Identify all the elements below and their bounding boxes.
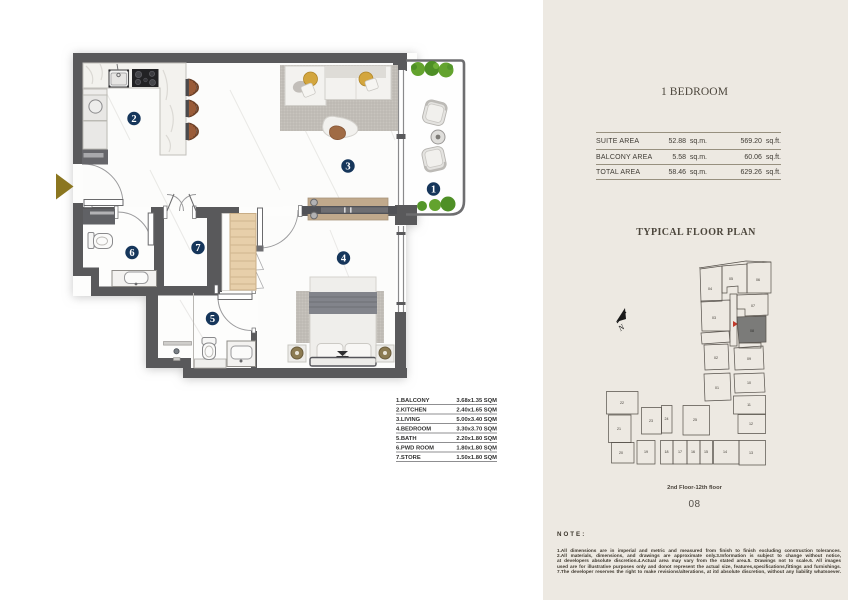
- svg-text:2.KITCHEN: 2.KITCHEN: [396, 408, 427, 414]
- svg-text:5.00x3.40 SQM: 5.00x3.40 SQM: [456, 417, 497, 423]
- svg-text:4: 4: [341, 254, 347, 265]
- svg-text:5.BATH: 5.BATH: [396, 436, 417, 442]
- svg-text:7: 7: [195, 243, 200, 254]
- svg-text:7.STORE: 7.STORE: [396, 455, 421, 461]
- svg-text:1.80x1.80 SQM: 1.80x1.80 SQM: [456, 446, 497, 452]
- svg-text:4.BEDROOM: 4.BEDROOM: [396, 427, 431, 433]
- svg-text:3: 3: [345, 162, 350, 173]
- svg-text:3.68x1.35 SQM: 3.68x1.35 SQM: [456, 398, 497, 404]
- svg-text:3.LIVING: 3.LIVING: [396, 417, 421, 423]
- svg-text:1: 1: [431, 185, 436, 196]
- svg-text:5: 5: [210, 314, 215, 325]
- svg-text:2.20x1.80 SQM: 2.20x1.80 SQM: [456, 436, 497, 442]
- svg-text:2: 2: [131, 114, 136, 125]
- svg-text:6.PWD ROOM: 6.PWD ROOM: [396, 446, 434, 452]
- svg-text:1.50x1.80 SQM: 1.50x1.80 SQM: [456, 455, 497, 461]
- svg-text:1.BALCONY: 1.BALCONY: [396, 398, 430, 404]
- svg-text:2.40x1.65 SQM: 2.40x1.65 SQM: [456, 408, 497, 414]
- svg-text:3.30x3.70 SQM: 3.30x3.70 SQM: [456, 427, 497, 433]
- svg-text:6: 6: [129, 248, 134, 259]
